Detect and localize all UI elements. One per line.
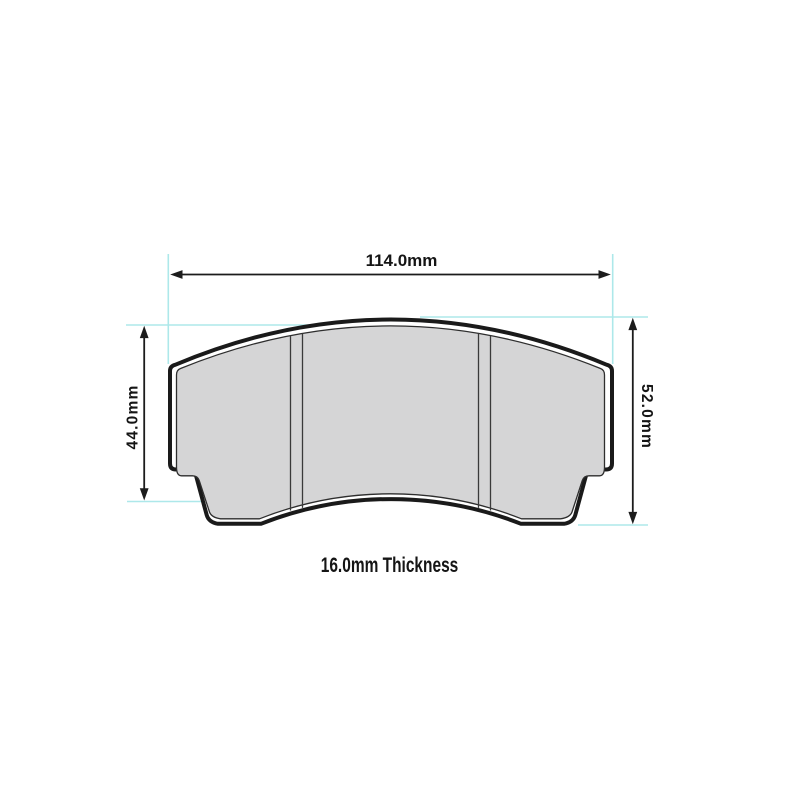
svg-text:52.0mm: 52.0mm [638, 384, 655, 449]
svg-text:44.0mm: 44.0mm [125, 385, 142, 450]
svg-text:16.0mm Thickness: 16.0mm Thickness [321, 552, 459, 576]
svg-text:114.0mm: 114.0mm [366, 251, 438, 270]
